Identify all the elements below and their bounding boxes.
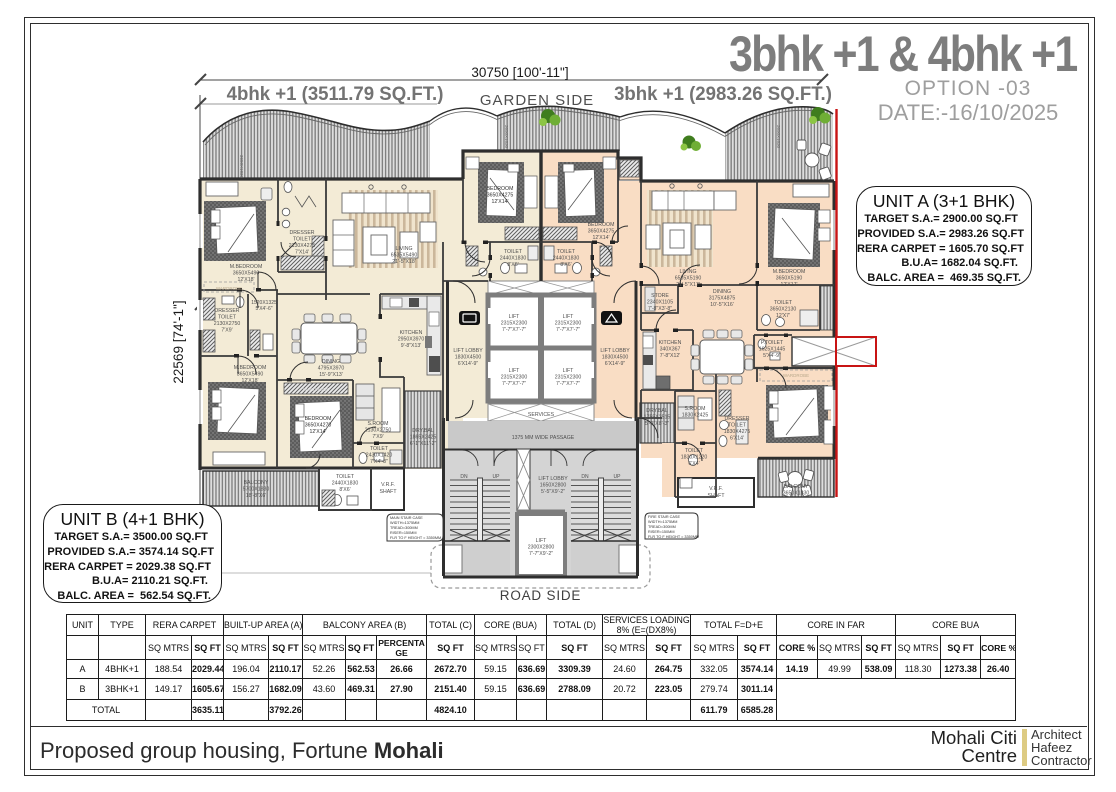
- svg-text:3650X5490: 3650X5490: [237, 372, 264, 378]
- svg-text:6'X4': 6'X4': [688, 461, 699, 467]
- svg-text:3650X5190: 3650X5190: [776, 276, 803, 282]
- svg-text:SERVICES: SERVICES: [528, 412, 555, 418]
- svg-text:1755X2515: 1755X2515: [644, 415, 671, 421]
- svg-text:TREAD=300MM: TREAD=300MM: [390, 526, 418, 530]
- svg-text:1375 MM WIDE PASSAGE: 1375 MM WIDE PASSAGE: [512, 435, 575, 441]
- svg-text:2440X1830: 2440X1830: [553, 256, 580, 262]
- svg-text:7'X14': 7'X14': [295, 250, 309, 256]
- svg-text:LIFT: LIFT: [563, 314, 574, 320]
- svg-text:2440X1830: 2440X1830: [332, 481, 359, 487]
- svg-text:TOILET: TOILET: [685, 448, 704, 454]
- svg-text:WIDTH=1375MM: WIDTH=1375MM: [390, 521, 419, 525]
- svg-text:LIVING: LIVING: [679, 269, 696, 275]
- svg-text:18'-8"X6': 18'-8"X6': [246, 493, 267, 499]
- svg-text:10'-5"X16': 10'-5"X16': [710, 302, 733, 308]
- svg-text:SHAFT: SHAFT: [379, 489, 397, 495]
- svg-text:RISER=150MM: RISER=150MM: [648, 530, 674, 534]
- svg-text:TOILET: TOILET: [728, 423, 747, 429]
- svg-text:12'X14': 12'X14': [593, 235, 610, 241]
- svg-text:7'-8"X3'-8": 7'-8"X3'-8": [648, 306, 672, 312]
- svg-text:340X367: 340X367: [660, 347, 681, 353]
- svg-text:5'-9"X8'-3": 5'-9"X8'-3": [645, 421, 669, 427]
- svg-text:S.ROOM: S.ROOM: [684, 406, 705, 412]
- svg-text:DRESSER: DRESSER: [724, 416, 749, 422]
- svg-text:TOILET: TOILET: [557, 249, 576, 255]
- svg-text:P.TOILET: P.TOILET: [761, 340, 784, 346]
- svg-text:1830X4500: 1830X4500: [602, 355, 629, 361]
- svg-text:V.R.F.: V.R.F.: [381, 482, 395, 488]
- svg-text:WARDROBE: WARDROBE: [783, 373, 809, 378]
- svg-text:4795X3970: 4795X3970: [318, 366, 345, 372]
- svg-text:BALCONY: BALCONY: [244, 480, 269, 486]
- svg-text:UP: UP: [614, 474, 622, 480]
- svg-text:LIFT: LIFT: [536, 538, 547, 544]
- svg-text:2950X3970: 2950X3970: [398, 337, 425, 343]
- svg-text:LIFT LOBBY: LIFT LOBBY: [453, 348, 483, 354]
- svg-text:DN: DN: [581, 474, 589, 480]
- svg-text:7'-7"X7'-7": 7'-7"X7'-7": [556, 381, 580, 387]
- svg-text:1625X1445: 1625X1445: [759, 347, 786, 353]
- svg-text:RISER=150MM: RISER=150MM: [390, 531, 416, 535]
- svg-text:3650X2130: 3650X2130: [770, 307, 797, 313]
- svg-text:21'-5"X18': 21'-5"X18': [392, 259, 415, 265]
- svg-text:6'X14'-9": 6'X14'-9": [605, 361, 626, 367]
- svg-text:22569 [74'-1"]: 22569 [74'-1"]: [171, 300, 186, 383]
- svg-text:BEDROOM: BEDROOM: [588, 222, 615, 228]
- svg-text:DN: DN: [460, 474, 468, 480]
- svg-text:KITCHEN: KITCHEN: [400, 330, 423, 336]
- svg-text:7'X9': 7'X9': [372, 434, 383, 440]
- svg-text:5700X1830: 5700X1830: [243, 487, 270, 493]
- svg-text:LIFT: LIFT: [509, 368, 520, 374]
- svg-text:BEDROOM: BEDROOM: [487, 186, 514, 192]
- svg-text:SHAFT: SHAFT: [707, 493, 725, 499]
- svg-text:TOILET: TOILET: [293, 237, 312, 243]
- svg-text:1830X4275: 1830X4275: [724, 429, 751, 435]
- svg-text:BALCONY: BALCONY: [784, 484, 809, 490]
- svg-text:DRESSER: DRESSER: [214, 308, 239, 314]
- svg-text:9'-8"X13': 9'-8"X13': [401, 343, 422, 349]
- svg-text:BEDROOM: BEDROOM: [305, 416, 332, 422]
- svg-text:TOILET: TOILET: [336, 474, 355, 480]
- svg-text:FIRE STAIR CASE: FIRE STAIR CASE: [648, 515, 680, 519]
- svg-text:3650X4275: 3650X4275: [487, 193, 514, 199]
- svg-text:2130X4275: 2130X4275: [289, 243, 316, 249]
- svg-text:3650X1830: 3650X1830: [776, 125, 781, 149]
- svg-text:15'-9"X13': 15'-9"X13': [319, 372, 342, 378]
- svg-text:FLR TO F HEIGHT = 3350MM: FLR TO F HEIGHT = 3350MM: [648, 535, 699, 539]
- svg-text:6535X5190: 6535X5190: [675, 276, 702, 282]
- svg-text:1830X1220: 1830X1220: [681, 455, 708, 461]
- svg-text:WARDROBE: WARDROBE: [216, 286, 242, 291]
- svg-text:5'-5"X9'-2": 5'-5"X9'-2": [541, 489, 565, 495]
- svg-text:8'X6': 8'X6': [560, 262, 571, 268]
- svg-text:LIFT: LIFT: [509, 314, 520, 320]
- svg-text:TOILET: TOILET: [504, 249, 523, 255]
- svg-text:2130X2750: 2130X2750: [214, 321, 241, 327]
- svg-text:1650X2800: 1650X2800: [540, 483, 567, 489]
- svg-text:3175X4875: 3175X4875: [709, 296, 736, 302]
- svg-text:1830X4500: 1830X4500: [455, 355, 482, 361]
- svg-text:30750 [100'-11"]: 30750 [100'-11"]: [471, 65, 568, 80]
- svg-text:12'X18': 12'X18': [242, 378, 259, 384]
- svg-text:LIFT LOBBY: LIFT LOBBY: [538, 476, 568, 482]
- svg-text:DRESSER: DRESSER: [289, 230, 314, 236]
- svg-text:6'-1"X11'-2": 6'-1"X11'-2": [410, 441, 437, 447]
- svg-text:6'X14': 6'X14': [730, 436, 744, 442]
- svg-text:KITCHEN: KITCHEN: [659, 340, 682, 346]
- svg-text:7'-8"X12': 7'-8"X12': [660, 353, 681, 359]
- svg-text:MAIN STAIR CASE: MAIN STAIR CASE: [390, 516, 423, 520]
- svg-text:DRY.BAL: DRY.BAL: [412, 428, 434, 434]
- svg-text:LIFT LOBBY: LIFT LOBBY: [600, 348, 630, 354]
- svg-text:FLR TO F HEIGHT = 3350MM: FLR TO F HEIGHT = 3350MM: [390, 536, 441, 540]
- svg-text:WIDTH=1375MM: WIDTH=1375MM: [648, 520, 677, 524]
- svg-text:TREAD=300MM: TREAD=300MM: [648, 525, 676, 529]
- svg-text:12'X17': 12'X17': [781, 282, 798, 288]
- svg-text:2440X1830: 2440X1830: [500, 256, 527, 262]
- svg-text:12'X14': 12'X14': [310, 429, 327, 435]
- svg-text:2315X2300: 2315X2300: [501, 375, 528, 381]
- svg-text:12'X18': 12'X18': [238, 277, 255, 283]
- svg-text:5'X4'-6": 5'X4'-6": [255, 306, 272, 312]
- svg-text:7'-7"X7'-7": 7'-7"X7'-7": [502, 327, 526, 333]
- svg-text:2315X2300: 2315X2300: [555, 321, 582, 327]
- svg-text:7'X9': 7'X9': [221, 328, 232, 334]
- svg-text:21'-5"X17': 21'-5"X17': [676, 282, 699, 288]
- svg-text:TOILET: TOILET: [370, 446, 389, 452]
- svg-text:WARDROBE: WARDROBE: [303, 387, 329, 392]
- svg-text:12'X14': 12'X14': [492, 199, 509, 205]
- svg-text:2315X2300: 2315X2300: [555, 375, 582, 381]
- svg-text:LIFT: LIFT: [563, 368, 574, 374]
- svg-text:LIVING: LIVING: [395, 246, 412, 252]
- svg-text:DRY.BAL: DRY.BAL: [646, 408, 668, 414]
- svg-text:7'-7"X9'-2": 7'-7"X9'-2": [529, 551, 553, 557]
- svg-text:3650X4270: 3650X4270: [305, 423, 332, 429]
- svg-text:2315X2300: 2315X2300: [501, 321, 528, 327]
- svg-text:1865X2425: 1865X2425: [410, 435, 437, 441]
- svg-text:8'X6': 8'X6': [507, 262, 518, 268]
- svg-text:7'X4'-8": 7'X4'-8": [370, 459, 388, 465]
- svg-text:2300X2800: 2300X2800: [528, 545, 555, 551]
- svg-text:M.BEDROOM: M.BEDROOM: [773, 269, 806, 275]
- svg-text:5'X4'-9": 5'X4'-9": [763, 353, 781, 359]
- svg-text:DINING: DINING: [713, 289, 731, 295]
- svg-text:6535X5490: 6535X5490: [391, 253, 418, 259]
- svg-text:3650X5490: 3650X5490: [233, 271, 260, 277]
- svg-text:2340X1105: 2340X1105: [647, 300, 673, 306]
- svg-text:2130X2750: 2130X2750: [365, 428, 392, 434]
- svg-text:UP: UP: [493, 474, 501, 480]
- svg-text:DINING: DINING: [322, 359, 340, 365]
- svg-text:3650X1830: 3650X1830: [504, 125, 509, 149]
- svg-text:6'X14'-9": 6'X14'-9": [458, 361, 479, 367]
- svg-text:3650X1830: 3650X1830: [783, 491, 810, 497]
- svg-text:3650X1830: 3650X1830: [239, 155, 244, 179]
- svg-text:12'X7': 12'X7': [776, 313, 790, 319]
- svg-text:TOILET: TOILET: [774, 300, 793, 306]
- svg-text:TOILET: TOILET: [218, 315, 237, 321]
- svg-text:V.R.F.: V.R.F.: [709, 486, 723, 492]
- svg-text:3650X4275: 3650X4275: [588, 229, 615, 235]
- svg-text:8'X6': 8'X6': [339, 487, 350, 493]
- svg-text:7'-7"X7'-7": 7'-7"X7'-7": [556, 327, 580, 333]
- svg-text:2430X1420: 2430X1420: [366, 453, 393, 459]
- svg-text:M.BEDROOM: M.BEDROOM: [234, 365, 267, 371]
- svg-text:7'-7"X7'-7": 7'-7"X7'-7": [502, 381, 526, 387]
- svg-text:1830X2425: 1830X2425: [682, 413, 709, 419]
- svg-text:M.BEDROOM: M.BEDROOM: [230, 264, 263, 270]
- svg-text:S.ROOM: S.ROOM: [367, 421, 388, 427]
- svg-text:STORE: STORE: [651, 293, 669, 299]
